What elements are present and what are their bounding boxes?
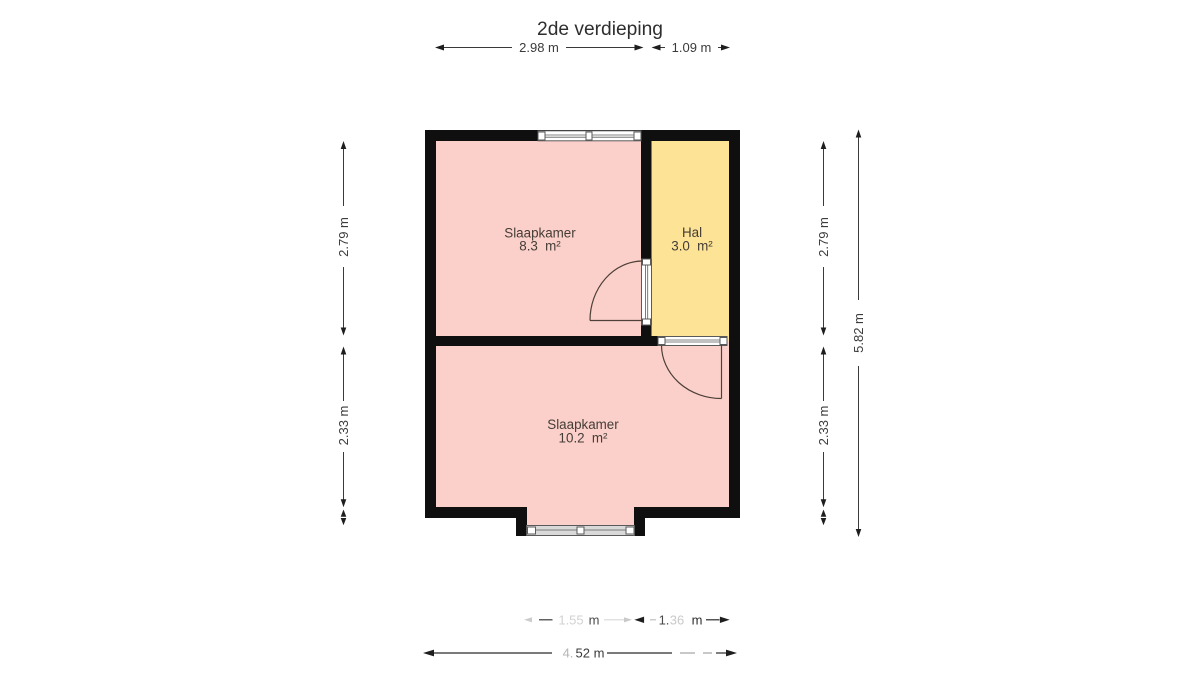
svg-text:52 m: 52 m — [576, 646, 605, 661]
svg-text:2de verdieping: 2de verdieping — [537, 19, 663, 40]
svg-text:8.3 m²: 8.3 m² — [519, 239, 561, 254]
svg-text:10.2 m²: 10.2 m² — [559, 431, 608, 446]
svg-text:1.55: 1.55 — [558, 613, 583, 628]
svg-text:2.98 m: 2.98 m — [519, 40, 559, 55]
svg-text:5.82 m: 5.82 m — [851, 313, 866, 353]
svg-text:2.33 m: 2.33 m — [816, 406, 831, 446]
svg-text:m: m — [692, 613, 703, 628]
svg-text:4.: 4. — [563, 646, 574, 661]
svg-text:2.79 m: 2.79 m — [336, 217, 351, 257]
svg-text:3.0 m²: 3.0 m² — [671, 239, 713, 254]
svg-text:1.: 1. — [659, 613, 670, 628]
svg-text:2.33 m: 2.33 m — [336, 406, 351, 446]
svg-text:36: 36 — [670, 613, 684, 628]
svg-text:m: m — [589, 613, 600, 628]
svg-text:2.79 m: 2.79 m — [816, 217, 831, 257]
svg-text:1.09 m: 1.09 m — [672, 40, 712, 55]
